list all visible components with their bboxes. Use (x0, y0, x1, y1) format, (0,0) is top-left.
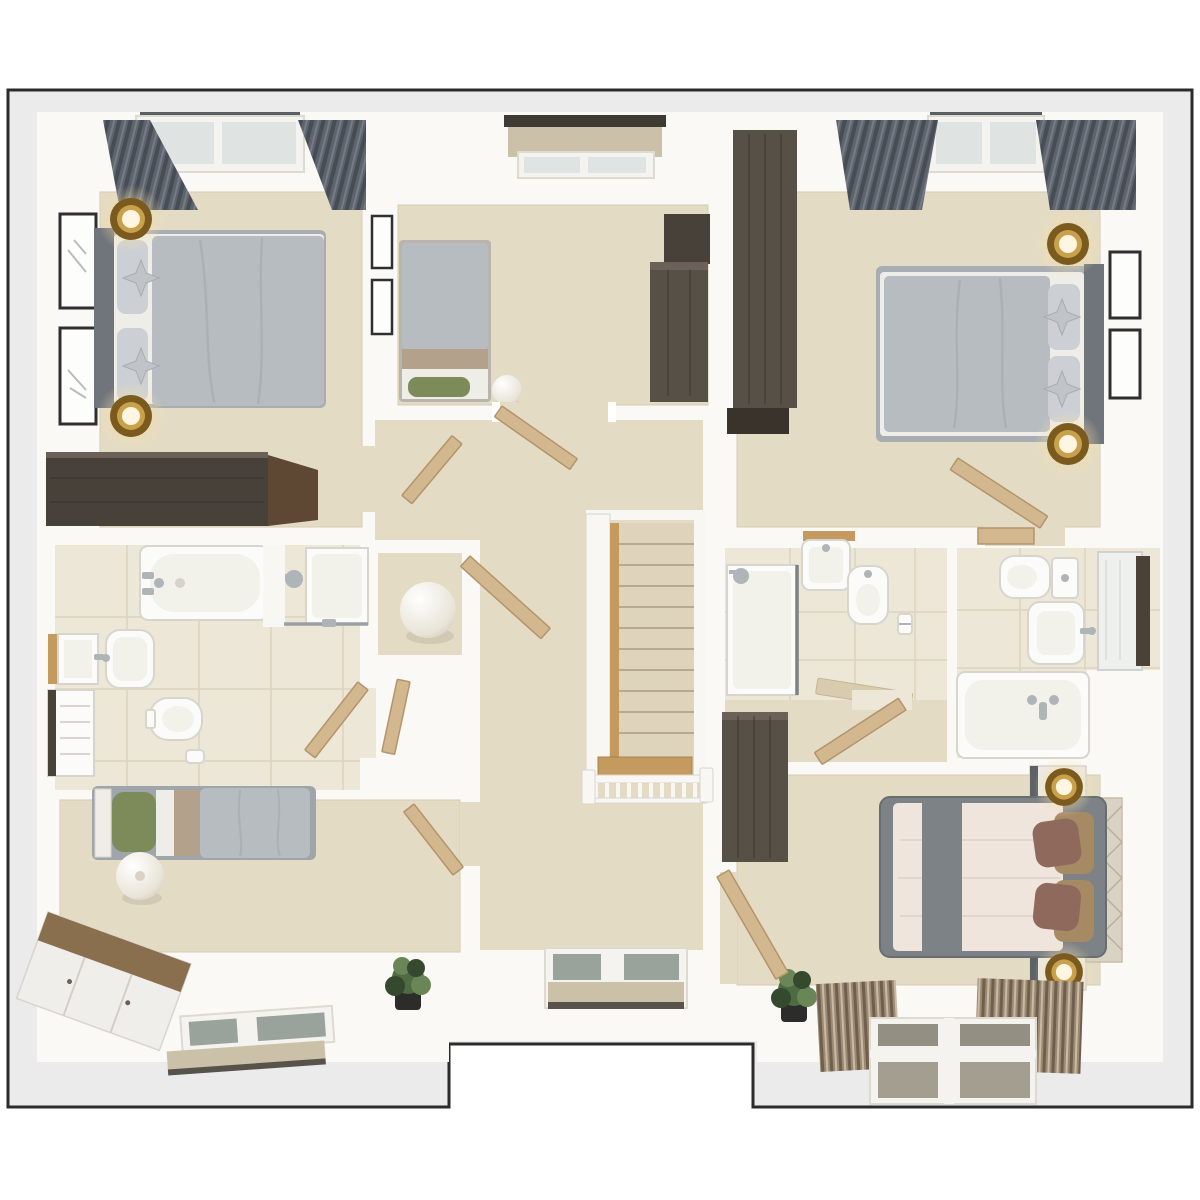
duvet (200, 788, 310, 858)
duvet (152, 236, 324, 406)
duvet (884, 276, 1050, 432)
niche-sphere-lamp (400, 582, 456, 644)
duvet (402, 243, 488, 349)
tall-wardrobe (727, 130, 797, 434)
picture-frame (1110, 252, 1140, 318)
floorplan-canvas (0, 0, 1200, 1200)
floor-plan-render (0, 0, 1200, 1200)
wall-hung-toilet (848, 566, 888, 624)
bedside-lamp-icon (1034, 210, 1102, 278)
blind-window (504, 115, 666, 178)
bathtub (140, 546, 268, 620)
bathtub (957, 672, 1089, 758)
vanity-wood (48, 634, 57, 684)
newel-post (582, 770, 595, 804)
stair-treads (610, 523, 694, 757)
picture-frame (60, 328, 96, 424)
wardrobe-dark (722, 712, 788, 862)
bed-runner (922, 803, 962, 951)
toilet-roll-holder (898, 614, 912, 634)
folded-blanket (174, 790, 200, 856)
picture-frame (372, 280, 392, 334)
shower-enclosure (727, 565, 797, 695)
paper-lantern-icon (116, 852, 164, 905)
toilet-with-cistern (1000, 556, 1078, 598)
roof-window (870, 1018, 1036, 1104)
roof-window (928, 116, 1044, 172)
curtain-left-icon (836, 120, 938, 210)
bedside-lamp-icon (97, 185, 165, 253)
bedside-lamp-icon (1033, 756, 1094, 817)
picture-frame (60, 214, 96, 308)
dresser-dark-wood (46, 452, 318, 526)
picture-frame (1110, 330, 1140, 398)
partition-wall (263, 545, 285, 627)
corridor-east (722, 712, 788, 862)
soap-dish (186, 750, 204, 763)
pillow-brown (1032, 882, 1083, 933)
headboard (95, 789, 111, 857)
green-pillow (112, 792, 156, 852)
picture-frame (372, 216, 392, 268)
square-basin (58, 634, 104, 684)
pillow-brown (1031, 817, 1083, 869)
bed-sheet (156, 790, 174, 856)
hall-roof-window (545, 948, 687, 1009)
single-bed (92, 786, 316, 860)
door-opening (358, 446, 378, 512)
newel-post (700, 768, 713, 802)
stair-stringer (586, 514, 610, 780)
rounded-basin (102, 630, 154, 688)
stair-wood-strip (610, 523, 619, 757)
single-bed (399, 240, 491, 402)
roof-window-blind (164, 1006, 336, 1076)
bedside-lamp-icon (1034, 410, 1102, 478)
double-bed (94, 228, 326, 408)
double-bed-master (880, 797, 1106, 957)
headboard (94, 228, 114, 408)
stair-wall-right (694, 514, 706, 780)
towel-panel (48, 690, 94, 776)
mirror-cabinet (1098, 552, 1150, 670)
door-against-wall (978, 528, 1034, 544)
folded-blanket (402, 349, 488, 369)
curtain-right-icon (1036, 120, 1136, 210)
wall-basin (802, 540, 850, 590)
toilet (146, 698, 202, 740)
green-pillow (408, 377, 470, 397)
door-opening (460, 802, 480, 866)
bedside-lamp-icon (97, 382, 165, 450)
